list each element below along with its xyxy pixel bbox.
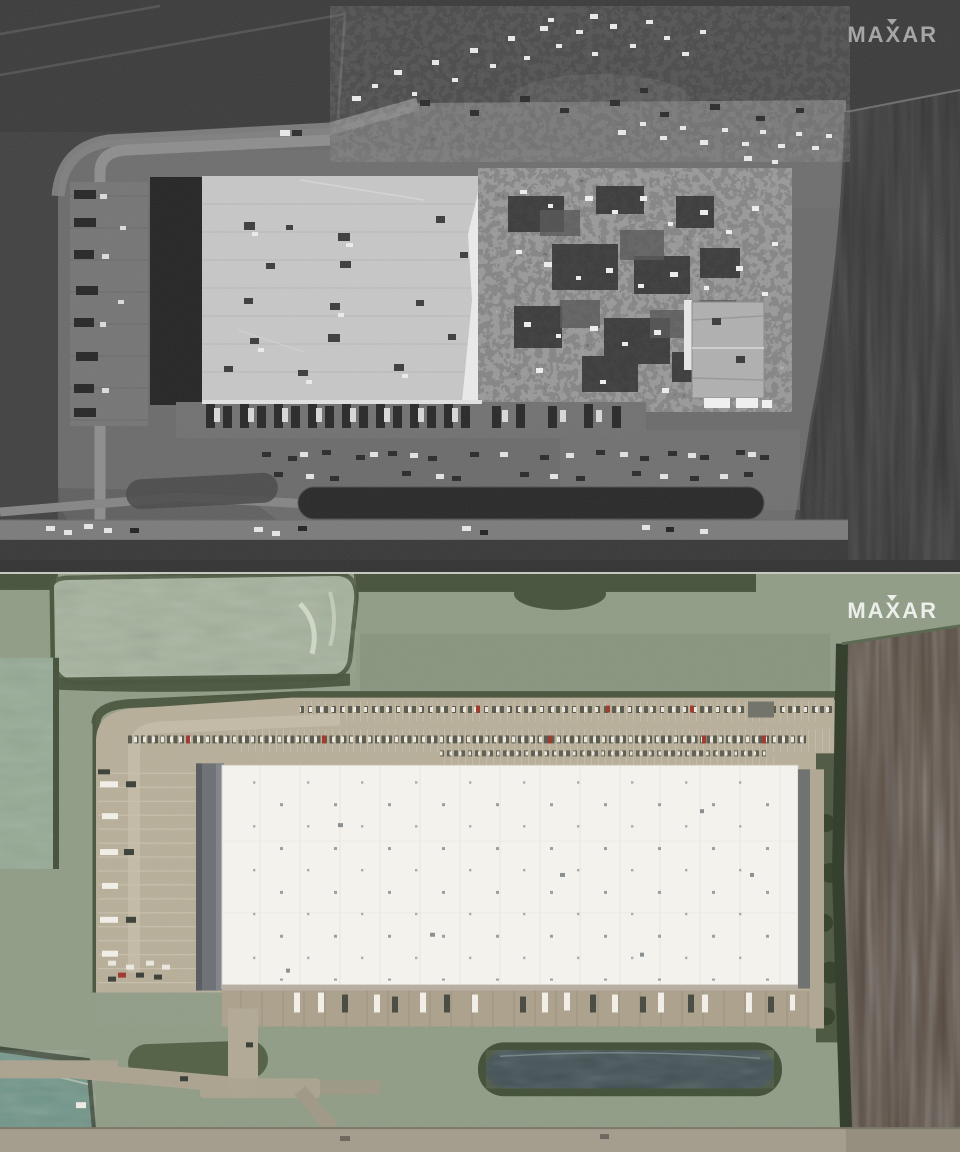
after-film-grain (0, 0, 960, 572)
before-loading-docks-south (222, 991, 810, 1027)
satellite-image-before-tornado: MAXAR (0, 572, 960, 1152)
before-pond-west (0, 658, 56, 869)
roof-vent-dots (230, 773, 790, 980)
before-bottom-road (0, 1128, 960, 1152)
before-scene (0, 574, 960, 1152)
satellite-comparison-page: MAXAR (0, 0, 960, 1152)
maxar-watermark-text: MAXAR (847, 598, 938, 623)
maxar-watermark: MAXAR (847, 24, 938, 46)
white-car (76, 1102, 86, 1108)
before-warehouse (196, 763, 824, 1028)
before-brown-farm-field (830, 624, 960, 1132)
before-warehouse-east-wall (798, 769, 810, 988)
before-field-shade (360, 634, 830, 698)
maxar-watermark-text: MAXAR (847, 22, 938, 47)
maxar-logo-caron-icon (887, 19, 897, 25)
before-pond-northwest (54, 576, 356, 692)
maxar-watermark: MAXAR (847, 600, 938, 622)
maxar-logo-caron-icon (887, 595, 897, 601)
after-scene (0, 0, 960, 572)
satellite-image-after-tornado: MAXAR (0, 0, 960, 572)
